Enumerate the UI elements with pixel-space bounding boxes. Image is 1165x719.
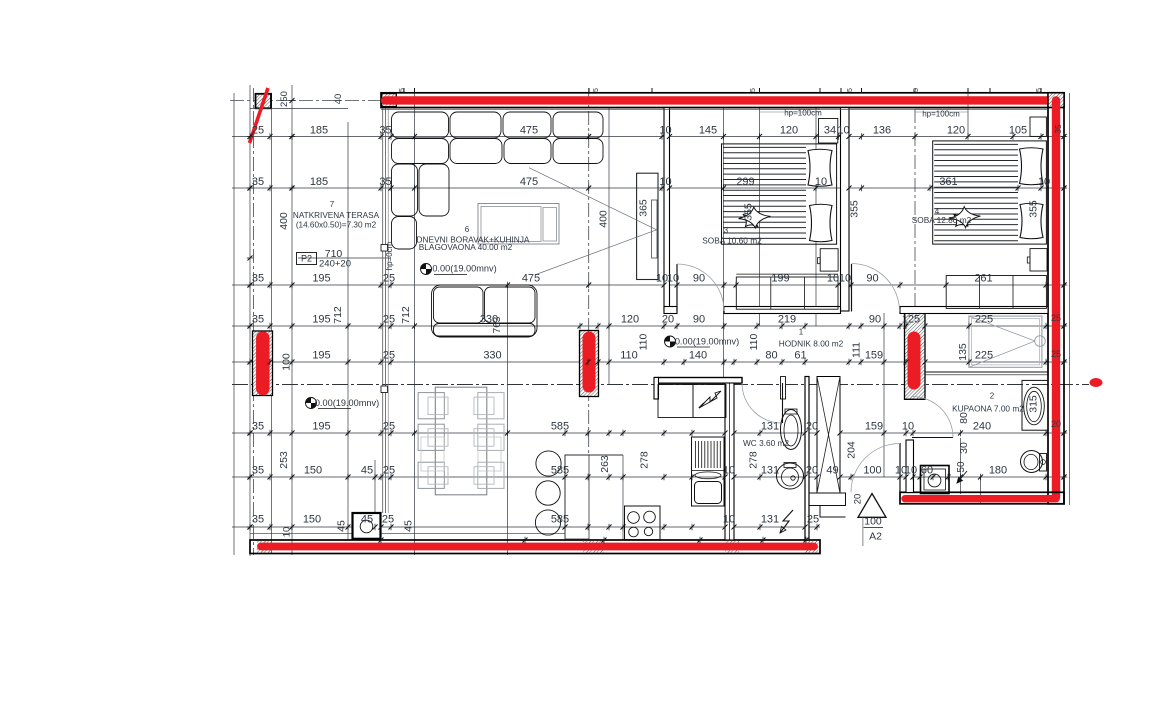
svg-text:10: 10 xyxy=(667,273,679,285)
svg-text:225: 225 xyxy=(975,314,993,326)
svg-text:35: 35 xyxy=(252,465,264,477)
svg-text:240+20: 240+20 xyxy=(319,259,351,270)
svg-text:100: 100 xyxy=(281,353,293,371)
svg-text:120: 120 xyxy=(780,125,798,137)
svg-text:1: 1 xyxy=(799,328,804,337)
svg-text:10: 10 xyxy=(837,125,849,137)
svg-text:204: 204 xyxy=(846,441,858,459)
svg-text:20: 20 xyxy=(806,465,818,477)
svg-text:225: 225 xyxy=(975,350,993,362)
svg-text:110: 110 xyxy=(620,350,638,362)
svg-text:35: 35 xyxy=(252,421,264,433)
svg-text:105: 105 xyxy=(1009,125,1027,137)
svg-text:712: 712 xyxy=(332,306,344,324)
svg-text:hp=0cm: hp=0cm xyxy=(385,241,394,270)
svg-text:90: 90 xyxy=(693,314,705,326)
svg-text:365: 365 xyxy=(638,199,650,217)
svg-text:5: 5 xyxy=(399,88,406,92)
svg-text:0.00(19.00mnv): 0.00(19.00mnv) xyxy=(315,398,379,408)
svg-text:475: 475 xyxy=(520,176,538,188)
svg-text:355: 355 xyxy=(849,200,861,218)
svg-text:195: 195 xyxy=(312,350,330,362)
svg-text:40: 40 xyxy=(333,94,344,105)
svg-text:25: 25 xyxy=(807,514,819,526)
svg-text:110: 110 xyxy=(638,333,650,350)
svg-text:25: 25 xyxy=(252,125,264,137)
svg-text:10: 10 xyxy=(659,176,671,188)
svg-text:585: 585 xyxy=(551,465,569,477)
svg-text:20: 20 xyxy=(1051,419,1061,429)
svg-text:150: 150 xyxy=(303,514,321,526)
svg-text:475: 475 xyxy=(522,273,540,285)
svg-text:10: 10 xyxy=(815,176,827,188)
svg-text:261: 261 xyxy=(974,273,992,285)
svg-text:195: 195 xyxy=(312,273,330,285)
svg-text:25: 25 xyxy=(383,421,395,433)
svg-text:6: 6 xyxy=(465,225,470,234)
svg-text:10: 10 xyxy=(723,514,735,526)
svg-text:100: 100 xyxy=(864,516,882,528)
svg-text:5: 5 xyxy=(750,88,757,92)
svg-text:199: 199 xyxy=(771,273,789,285)
svg-text:219: 219 xyxy=(778,314,796,326)
svg-text:10: 10 xyxy=(839,273,851,285)
svg-text:180: 180 xyxy=(989,465,1007,477)
svg-text:10: 10 xyxy=(905,465,917,477)
svg-text:25: 25 xyxy=(1051,349,1061,359)
svg-text:35: 35 xyxy=(252,514,264,526)
svg-text:135: 135 xyxy=(957,343,969,361)
svg-text:25: 25 xyxy=(383,314,395,326)
svg-text:hp=100cm: hp=100cm xyxy=(784,109,822,118)
svg-text:(14.60x0.50)=7.30 m2: (14.60x0.50)=7.30 m2 xyxy=(296,221,377,230)
svg-text:hp=100cm: hp=100cm xyxy=(922,110,960,119)
svg-text:250: 250 xyxy=(279,91,290,107)
svg-text:30: 30 xyxy=(958,442,970,454)
svg-text:355: 355 xyxy=(1028,200,1040,218)
svg-text:159: 159 xyxy=(865,350,883,362)
svg-text:45: 45 xyxy=(361,514,373,526)
svg-text:34: 34 xyxy=(824,125,836,137)
svg-text:80: 80 xyxy=(958,412,970,424)
svg-text:60: 60 xyxy=(921,465,933,477)
svg-text:0.00(19.00mnv): 0.00(19.00mnv) xyxy=(432,264,496,274)
svg-text:712: 712 xyxy=(400,306,412,324)
svg-text:120: 120 xyxy=(947,125,965,137)
svg-text:253: 253 xyxy=(278,451,290,469)
svg-text:SOBA 12.80 m2: SOBA 12.80 m2 xyxy=(912,215,972,225)
svg-text:131: 131 xyxy=(761,465,779,477)
svg-text:25: 25 xyxy=(382,514,394,526)
svg-text:136: 136 xyxy=(873,125,891,137)
svg-text:159: 159 xyxy=(865,421,883,433)
svg-text:5: 5 xyxy=(593,88,600,92)
svg-text:5: 5 xyxy=(847,88,854,92)
svg-text:10: 10 xyxy=(1038,176,1050,188)
svg-text:585: 585 xyxy=(551,514,569,526)
svg-text:400: 400 xyxy=(278,212,290,230)
svg-text:475: 475 xyxy=(520,125,538,137)
svg-text:P2: P2 xyxy=(301,254,312,264)
svg-text:3: 3 xyxy=(724,226,729,235)
svg-text:240: 240 xyxy=(973,421,991,433)
svg-text:140: 140 xyxy=(689,350,707,362)
svg-text:2: 2 xyxy=(990,392,995,401)
svg-text:5: 5 xyxy=(913,88,920,92)
svg-text:100: 100 xyxy=(863,465,881,477)
svg-text:35: 35 xyxy=(252,176,264,188)
svg-text:185: 185 xyxy=(310,125,328,137)
svg-text:10: 10 xyxy=(827,273,839,285)
svg-text:585: 585 xyxy=(551,421,569,433)
svg-text:49: 49 xyxy=(826,465,838,477)
svg-text:SOBA 10.60 m2: SOBA 10.60 m2 xyxy=(702,236,762,246)
svg-text:330: 330 xyxy=(483,350,501,362)
svg-text:185: 185 xyxy=(310,176,328,188)
svg-text:315: 315 xyxy=(1028,395,1040,413)
svg-text:10: 10 xyxy=(282,527,293,538)
svg-text:195: 195 xyxy=(312,421,330,433)
svg-text:45: 45 xyxy=(361,465,373,477)
svg-text:150: 150 xyxy=(304,465,322,477)
svg-text:400: 400 xyxy=(598,210,610,228)
svg-text:25: 25 xyxy=(1051,313,1061,323)
svg-text:0.00(19.00mnv): 0.00(19.00mnv) xyxy=(675,337,739,347)
svg-text:10: 10 xyxy=(659,125,671,137)
svg-text:35: 35 xyxy=(252,314,264,326)
svg-text:25: 25 xyxy=(383,350,395,362)
svg-text:NATKRIVENA TERASA: NATKRIVENA TERASA xyxy=(293,211,380,220)
svg-text:25: 25 xyxy=(383,273,395,285)
svg-text:50: 50 xyxy=(956,461,967,473)
svg-text:131: 131 xyxy=(761,421,779,433)
svg-text:120: 120 xyxy=(621,314,639,326)
svg-text:35: 35 xyxy=(379,176,391,188)
svg-text:BLAGOVAONA 40.00 m2: BLAGOVAONA 40.00 m2 xyxy=(419,242,513,252)
svg-text:80: 80 xyxy=(765,350,777,362)
svg-text:20: 20 xyxy=(806,421,818,433)
svg-text:35: 35 xyxy=(252,273,264,285)
svg-text:45: 45 xyxy=(336,520,348,532)
svg-text:355: 355 xyxy=(743,203,755,221)
svg-text:35: 35 xyxy=(1053,124,1063,134)
svg-text:131: 131 xyxy=(761,514,779,526)
svg-text:KUPAONA 7.00 m2: KUPAONA 7.00 m2 xyxy=(952,404,1024,414)
svg-text:61: 61 xyxy=(794,350,806,362)
svg-text:125: 125 xyxy=(902,314,920,326)
svg-text:20: 20 xyxy=(662,314,674,326)
svg-text:7: 7 xyxy=(330,200,335,209)
svg-text:361: 361 xyxy=(939,176,957,188)
svg-text:10: 10 xyxy=(902,421,914,433)
svg-text:25: 25 xyxy=(383,465,395,477)
svg-text:195: 195 xyxy=(312,314,330,326)
svg-text:5: 5 xyxy=(1036,88,1043,92)
svg-text:45: 45 xyxy=(403,520,415,532)
svg-text:20: 20 xyxy=(853,494,864,505)
svg-text:A2: A2 xyxy=(869,531,882,543)
svg-text:299: 299 xyxy=(736,176,754,188)
svg-text:HODNIK 8.00 m2: HODNIK 8.00 m2 xyxy=(779,339,844,349)
svg-text:145: 145 xyxy=(699,125,717,137)
svg-text:278: 278 xyxy=(748,451,760,469)
svg-text:90: 90 xyxy=(869,314,881,326)
svg-text:263: 263 xyxy=(599,455,611,473)
svg-text:WC 3.60 m2: WC 3.60 m2 xyxy=(743,438,789,448)
svg-text:10: 10 xyxy=(723,465,735,477)
svg-text:763: 763 xyxy=(492,316,503,333)
svg-text:278: 278 xyxy=(639,451,651,469)
svg-text:90: 90 xyxy=(693,273,705,285)
svg-text:111: 111 xyxy=(851,342,863,358)
svg-text:110: 110 xyxy=(748,333,760,350)
svg-text:35: 35 xyxy=(379,125,391,137)
svg-text:90: 90 xyxy=(866,273,878,285)
